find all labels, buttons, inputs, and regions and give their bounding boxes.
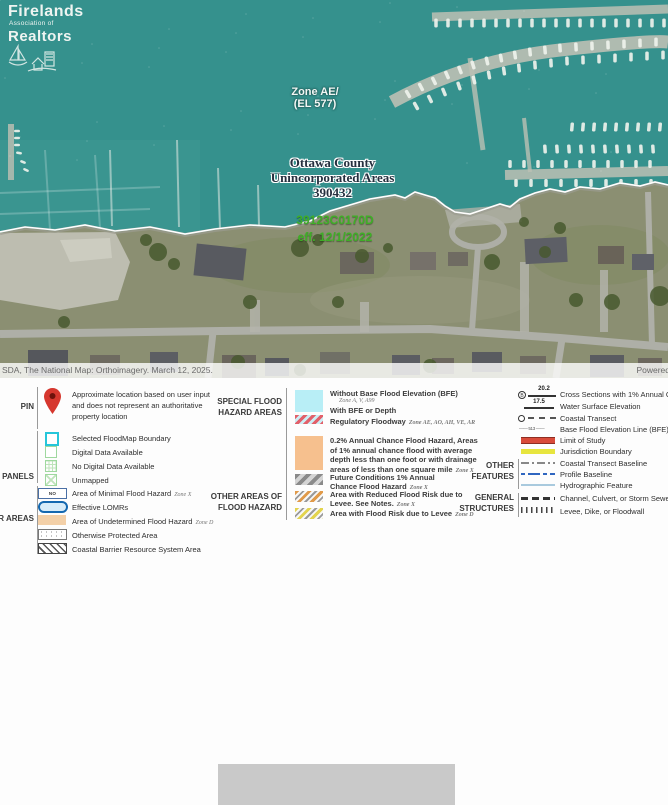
other-features-group-label: FEATURES: [440, 472, 514, 481]
divider: [286, 388, 287, 520]
sfha-zone-swatch: [295, 390, 323, 412]
logo-name: Firelands: [8, 4, 84, 20]
digital-data-available-swatch: [45, 446, 57, 458]
legend-item: Levee. See Notes.Zone X: [330, 499, 415, 508]
legend-item: Selected FloodMap Boundary: [72, 434, 171, 443]
pin-description: property location: [72, 412, 127, 421]
divider: [518, 493, 519, 517]
legend-item: Water Surface Elevation: [560, 402, 641, 411]
legend-item: Base Flood Elevation Line (BFE): [560, 425, 668, 434]
legend-item: Area of Undetermined Flood HazardZone D: [72, 517, 213, 526]
legend-item: Coastal Transect: [560, 414, 616, 423]
other-areas-group-label: ER AREAS: [0, 514, 34, 523]
legend-item: Without Base Flood Elevation (BFE): [330, 389, 458, 398]
legend-item: Future Conditions 1% Annual: [330, 473, 435, 482]
limit-of-study-line: [521, 437, 555, 444]
unmapped-swatch: [45, 474, 57, 486]
point2-pct-swatch: [295, 436, 323, 470]
hydrographic-feature-line: [521, 484, 555, 486]
divider: [37, 431, 38, 483]
divider: [518, 459, 519, 489]
divider: [37, 387, 38, 429]
logo-sub: Association of: [9, 21, 84, 28]
firelands-realtors-logo: Firelands Association of Realtors: [8, 4, 84, 78]
coastal-transect-node-icon: [518, 415, 525, 422]
legend-item: With BFE or Depth: [330, 406, 396, 415]
legend-item: Area of Minimal Flood HazardZone X: [72, 489, 191, 498]
risk-due-levee-swatch: [295, 508, 323, 519]
zone-ae-label: Zone AE/ (EL 577): [260, 86, 370, 110]
legend-item: Jurisdiction Boundary: [560, 447, 632, 456]
legend-item: 0.2% Annual Chance Flood Hazard, Areas: [330, 436, 478, 445]
future-conditions-swatch: [295, 474, 323, 485]
otherwise-protected-swatch: [38, 529, 67, 540]
legend-item: Digital Data Available: [72, 448, 143, 457]
bfe-line-symbol: —— 513 ——: [519, 426, 544, 431]
sailboat-house-icon: [8, 44, 60, 74]
firm-panel-label: 39123C0170D eff. 12/1/2022: [260, 212, 410, 246]
cross-section-line: [528, 395, 556, 397]
logo-name2: Realtors: [8, 29, 84, 44]
selected-floodmap-boundary-swatch: [45, 432, 59, 446]
legend-item: Limit of Study: [560, 436, 605, 445]
general-structures-group-label: GENERAL: [440, 493, 514, 502]
legend-item: Regulatory FloodwayZone AE, AO, AH, VE, …: [330, 417, 475, 426]
pin-group-label: PIN: [21, 402, 34, 411]
wse-line: [524, 407, 554, 409]
undetermined-hazard-swatch: [38, 515, 66, 525]
effective-lomrs-swatch: [38, 501, 68, 513]
legend-item: Otherwise Protected Area: [72, 531, 157, 540]
legend-item: Profile Baseline: [560, 470, 612, 479]
sfha-group-label: HAZARD AREAS: [206, 408, 282, 417]
jurisdiction-boundary-line: [521, 449, 555, 454]
attribution-text: SDA, The National Map: Orthoimagery. Mar…: [2, 363, 213, 378]
other-features-group-label: OTHER: [440, 461, 514, 470]
levee-dike-line: [521, 507, 555, 513]
oafh-group-label: OTHER AREAS OF: [200, 492, 282, 501]
legend-item: Levee, Dike, or Floodwall: [560, 507, 644, 516]
cross-section-node-icon: B: [518, 391, 526, 399]
channel-culvert-line: [521, 497, 555, 500]
profile-baseline-line: [521, 473, 555, 475]
legend-item: No Digital Data Available: [72, 462, 154, 471]
no-screen-swatch: NO SCREEN: [38, 488, 67, 499]
coastal-transect-baseline-line: [521, 462, 555, 464]
legend-item: Channel, Culvert, or Storm Sewer: [560, 494, 668, 503]
cross-section-value: 20.2: [532, 386, 556, 392]
legend-item: Hydrographic Feature: [560, 481, 633, 490]
zone-codes: Zone A, V, A99: [339, 398, 375, 404]
sfha-group-label: SPECIAL FLOOD: [206, 397, 282, 406]
general-structures-group-label: STRUCTURES: [440, 504, 514, 513]
community-label: Ottawa County Unincorporated Areas 39043…: [230, 155, 435, 200]
regulatory-floodway-swatch: [295, 415, 323, 424]
oafh-group-label: FLOOD HAZARD: [200, 503, 282, 512]
legend-item: Coastal Transect Baseline: [560, 459, 647, 468]
reduced-risk-levee-swatch: [295, 491, 323, 502]
legend-item: of 1% annual chance flood with average: [330, 446, 472, 455]
location-pin-icon: [44, 388, 61, 415]
flood-map-legend: PIN Approximate location based on user i…: [0, 378, 668, 560]
attribution-bar: SDA, The National Map: Orthoimagery. Mar…: [0, 363, 668, 378]
coastal-barrier-swatch: [38, 543, 67, 554]
no-digital-data-swatch: [45, 460, 57, 472]
coastal-transect-line: [528, 417, 556, 419]
legend-item: Unmapped: [72, 476, 109, 485]
legend-item: Effective LOMRs: [72, 503, 128, 512]
pin-description: and does not represent an authoritative: [72, 401, 203, 410]
legend-item: Cross Sections with 1% Annual Chan: [560, 390, 668, 399]
sfha-background: [218, 764, 455, 805]
flood-map-canvas[interactable]: Firelands Association of Realtors Zone A…: [0, 0, 668, 378]
wse-value: 17.5: [526, 399, 552, 405]
legend-item: Coastal Barrier Resource System Area: [72, 545, 201, 554]
powered-by-text: Powered: [636, 363, 668, 378]
map-panels-group-label: P PANELS: [0, 472, 34, 481]
pin-description: Approximate location based on user input: [72, 390, 210, 399]
